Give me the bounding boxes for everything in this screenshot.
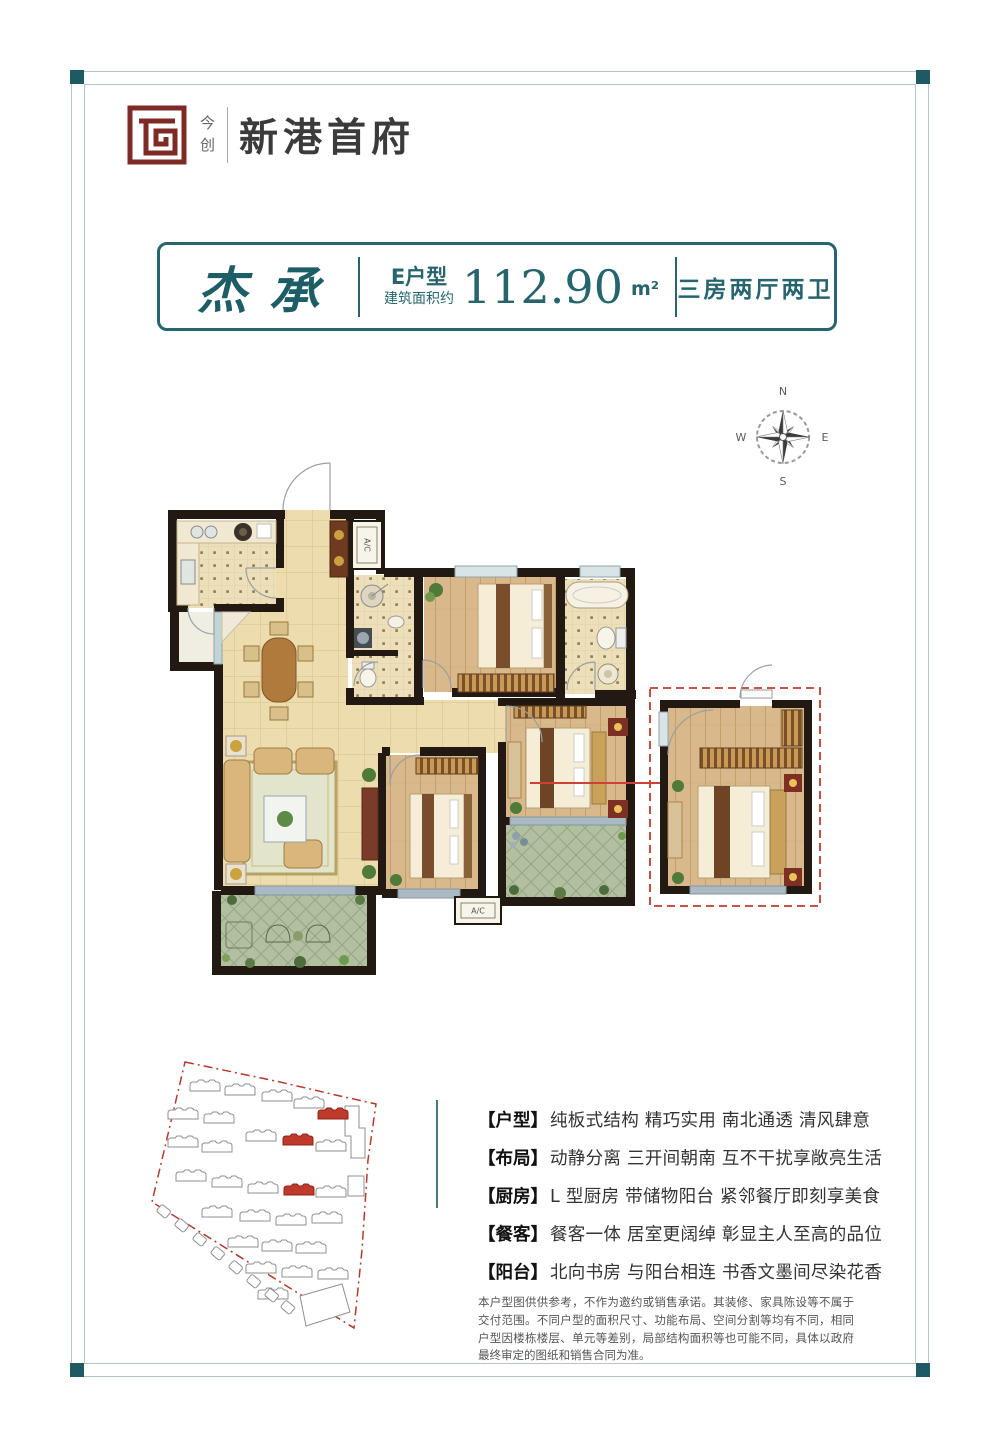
feature-label: 【户型】 — [478, 1107, 548, 1132]
compass-w: W — [736, 431, 747, 444]
brand-name: 新港首府 — [239, 107, 415, 163]
section-divider — [436, 1100, 438, 1208]
storage-balcony-floor — [178, 612, 218, 666]
tv-cabinet — [362, 788, 378, 860]
wardrobe — [416, 758, 478, 774]
feature-row: 【户型】 纯板式结构 精巧实用 南北通透 清风肆意 — [478, 1100, 856, 1138]
bookshelf — [458, 674, 554, 692]
title-box: 杰承 E户型 建筑面积约 112.90 m² 三房两厅两卫 — [157, 242, 837, 331]
compass-n: N — [779, 385, 787, 398]
disclaimer-text: 本户型图供供参考，不作为邀约或销售承诺。其装修、家具陈设等不属于交付范围。不同户… — [478, 1294, 854, 1365]
area-prefix: 建筑面积约 — [384, 290, 454, 308]
feature-label: 【阳台】 — [478, 1259, 548, 1284]
wardrobe — [508, 742, 521, 798]
frame-corner — [916, 70, 930, 84]
entry-cabinet — [330, 521, 348, 577]
feature-row: 【餐客】 餐客一体 居室更阔绰 彰显主人至高的品位 — [478, 1214, 856, 1252]
feature-label: 【餐客】 — [478, 1221, 548, 1246]
feature-row: 【布局】 动静分离 三开间朝南 互不干扰享敞亮生活 — [478, 1138, 856, 1176]
ac-label-top: A/C — [363, 538, 372, 552]
feature-label: 【布局】 — [478, 1145, 548, 1170]
frame-corner — [70, 1363, 84, 1377]
flyer-page: 今创 新港首府 杰承 E户型 建筑面积约 112.90 m² 三房两厅两卫 — [0, 0, 1000, 1447]
ac-platform-bottom: A/C — [455, 897, 501, 924]
area-unit: m² — [631, 278, 659, 300]
feature-list: 【户型】 纯板式结构 精巧实用 南北通透 清风肆意 【布局】 动静分离 三开间朝… — [478, 1100, 856, 1290]
area-group: E户型 建筑面积约 112.90 m² — [360, 264, 675, 310]
feature-label: 【厨房】 — [478, 1183, 548, 1208]
feature-text: 动静分离 三开间朝南 互不干扰享敞亮生活 — [550, 1145, 882, 1170]
floor-plan: A/C A/C — [150, 453, 860, 993]
feature-text: 北向书房 与阳台相连 书香文墨间尽染花香 — [550, 1259, 882, 1284]
site-plan — [148, 1052, 448, 1347]
room-layout-text: 三房两厅两卫 — [677, 270, 834, 304]
unit-type-label: E户型 — [384, 265, 454, 290]
ac-label-bottom: A/C — [471, 907, 485, 916]
frame-corner — [70, 70, 84, 84]
feature-text: 餐客一体 居室更阔绰 彰显主人至高的品位 — [550, 1221, 882, 1246]
unit-calligraphy-name: 杰承 — [160, 251, 358, 323]
frame-corner — [916, 1363, 930, 1377]
ac-platform-top: A/C — [352, 521, 382, 569]
brand-divider — [227, 107, 228, 163]
area-value: 112.90 — [462, 264, 623, 310]
brand-logo: 今创 新港首府 — [126, 104, 415, 166]
feature-text: 纯板式结构 精巧实用 南北通透 清风肆意 — [550, 1107, 870, 1132]
logo-maze-icon — [126, 104, 188, 166]
feature-text: L 型厨房 带储物阳台 紧邻餐厅即刻享美食 — [550, 1183, 880, 1208]
master-balcony-floor — [506, 825, 628, 899]
feature-row: 【厨房】 L 型厨房 带储物阳台 紧邻餐厅即刻享美食 — [478, 1176, 856, 1214]
brand-side-text: 今创 — [200, 113, 218, 157]
feature-row: 【阳台】 北向书房 与阳台相连 书香文墨间尽染花香 — [478, 1252, 856, 1290]
compass-e: E — [822, 431, 829, 444]
